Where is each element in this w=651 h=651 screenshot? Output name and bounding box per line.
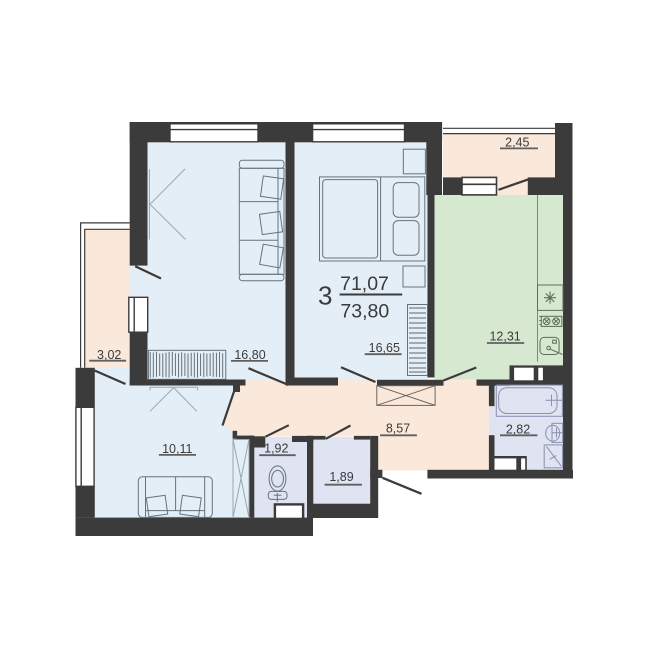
svg-text:12,31: 12,31 [489, 330, 520, 344]
svg-text:16,80: 16,80 [234, 348, 265, 362]
svg-text:2,82: 2,82 [506, 422, 530, 436]
svg-text:1,92: 1,92 [264, 442, 288, 456]
svg-text:1,89: 1,89 [329, 470, 353, 484]
svg-text:71,07: 71,07 [340, 273, 389, 295]
svg-text:16,65: 16,65 [369, 341, 400, 355]
svg-text:2,45: 2,45 [505, 136, 529, 150]
svg-text:3: 3 [318, 281, 332, 311]
svg-text:73,80: 73,80 [340, 300, 389, 322]
svg-text:8,57: 8,57 [386, 421, 410, 435]
